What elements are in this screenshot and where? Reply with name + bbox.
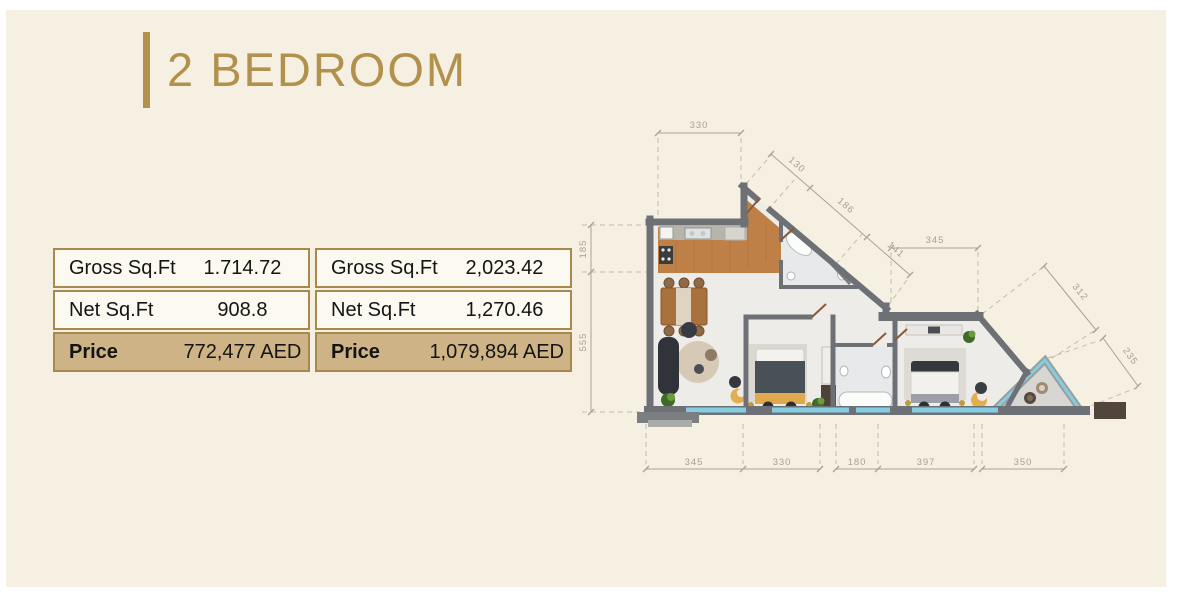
title-block: 2 BEDROOM <box>143 32 467 108</box>
neighbor-block <box>1094 402 1126 419</box>
row-value: 908.8 <box>183 299 308 322</box>
fridge <box>725 227 745 240</box>
dimension-label-right-1: 312 <box>1070 282 1090 304</box>
dimension-label-right-2: 235 <box>1120 346 1140 368</box>
unit-b-table: Gross Sq.Ft 2,023.42 Net Sq.Ft 1,270.46 … <box>315 248 572 372</box>
row-label: Price <box>55 341 183 364</box>
dimension-label-bottom-2: 330 <box>773 457 792 468</box>
dimension-label-bottom-1: 345 <box>685 457 704 468</box>
row-label: Gross Sq.Ft <box>317 257 445 280</box>
sink <box>840 366 848 376</box>
dimension-label-bottom-3: 180 <box>848 457 867 468</box>
dimension-label-left-2: 555 <box>578 333 589 352</box>
row-value: 1,270.46 <box>445 299 570 322</box>
balcony-glazing <box>686 408 998 413</box>
floor-plan: 330 185 555 130 186 141 345 312 235 345 … <box>578 115 1180 487</box>
washer <box>660 227 673 239</box>
bed <box>755 361 805 396</box>
table-row: Gross Sq.Ft 2,023.42 <box>315 248 572 288</box>
page-title: 2 BEDROOM <box>167 32 467 108</box>
row-label: Gross Sq.Ft <box>55 257 183 280</box>
brochure-page: { "header": { "title": "2 BEDROOM", "acc… <box>0 0 1184 594</box>
dimension-label-top: 330 <box>690 120 709 131</box>
toilet <box>882 366 891 378</box>
row-label: Net Sq.Ft <box>55 299 183 322</box>
row-value: 772,477 AED <box>183 341 308 364</box>
table-row-price: Price 772,477 AED <box>53 332 310 372</box>
dimension-label-bottom-5: 350 <box>1014 457 1033 468</box>
table-row: Gross Sq.Ft 1.714.72 <box>53 248 310 288</box>
bathroom-2 <box>836 347 895 411</box>
armchair <box>681 322 697 338</box>
table-row: Net Sq.Ft 1,270.46 <box>315 290 572 330</box>
spec-tables: Gross Sq.Ft 1.714.72 Net Sq.Ft 908.8 Pri… <box>53 248 572 372</box>
table-row-price: Price 1,079,894 AED <box>315 332 572 372</box>
row-label: Price <box>317 341 429 364</box>
row-value: 2,023.42 <box>445 257 570 280</box>
stove <box>659 246 673 264</box>
rug <box>677 341 719 383</box>
kitchen-sink <box>685 228 711 239</box>
dimension-label-diag-1: 130 <box>786 155 807 176</box>
sink <box>787 272 795 280</box>
dimension-label-left-1: 185 <box>578 240 589 259</box>
unit-a-table: Gross Sq.Ft 1.714.72 Net Sq.Ft 908.8 Pri… <box>53 248 310 372</box>
row-value: 1.714.72 <box>183 257 308 280</box>
sofa <box>658 337 679 395</box>
row-label: Net Sq.Ft <box>317 299 445 322</box>
row-value: 1,079,894 AED <box>429 341 570 364</box>
table-row: Net Sq.Ft 908.8 <box>53 290 310 330</box>
dimension-label-bottom-4: 397 <box>917 457 936 468</box>
title-accent-bar <box>143 32 150 108</box>
dimension-label-diag-2: 186 <box>835 196 856 217</box>
dimension-label-mid: 345 <box>926 235 945 246</box>
dimension-label-diag-3: 141 <box>885 240 906 261</box>
